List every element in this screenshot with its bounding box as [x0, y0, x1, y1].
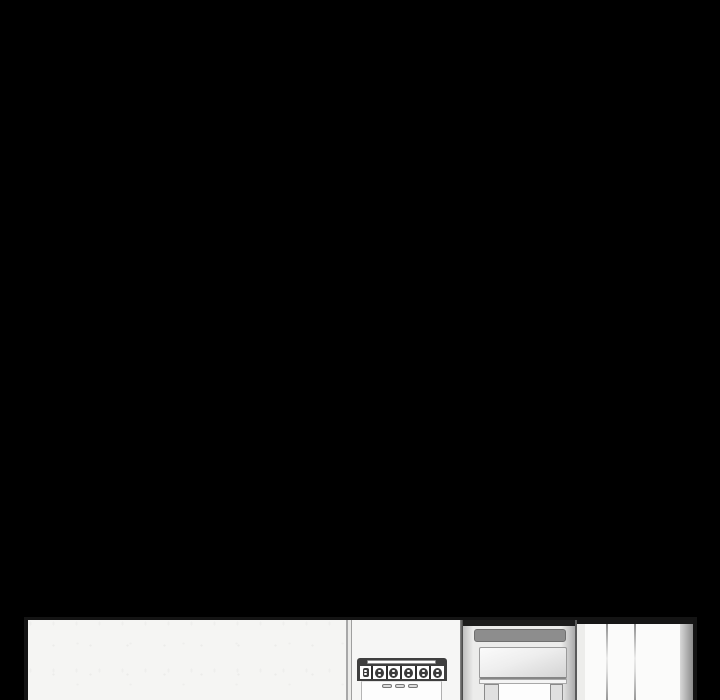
stove-knob-cell	[400, 666, 415, 679]
comic-panel	[24, 617, 697, 700]
oven-drawer-handle	[408, 684, 418, 688]
stove-knob	[433, 668, 442, 678]
oven-drawer-handle	[382, 684, 392, 688]
stove-knob	[375, 668, 384, 678]
stove-knob	[404, 668, 413, 678]
cabinet-panels-right	[577, 620, 693, 700]
stove-knob-row	[360, 666, 444, 679]
stove-knob-cell	[371, 666, 386, 679]
letterbox-background	[0, 0, 720, 700]
oven-drawer-handle	[395, 684, 405, 688]
stove-knob-cell	[429, 666, 444, 679]
stove-knob	[419, 668, 428, 678]
dispenser-cavity-interior	[499, 684, 550, 700]
cabinet-panel-seam	[606, 624, 608, 700]
dispenser-post-left	[484, 684, 499, 700]
stove-backsplash-trim	[367, 660, 436, 664]
stove-control-panel	[357, 658, 447, 681]
stove-aux-switch	[363, 668, 369, 677]
stove-aux-switch-cell	[360, 666, 371, 679]
cabinet-edge-strip	[680, 624, 693, 700]
stove-knob	[389, 668, 398, 678]
kitchen-scene	[28, 620, 693, 700]
refrigerator-top-edge	[463, 620, 577, 626]
cabinet-shade-column	[577, 624, 585, 700]
dispenser-post-right	[550, 684, 563, 700]
oven-front	[361, 681, 442, 700]
oven-handle-row	[382, 684, 418, 688]
water-dispenser	[479, 647, 567, 679]
cabinet-panel-seam	[634, 624, 636, 700]
stove	[357, 658, 447, 700]
kitchen-wall	[28, 620, 346, 700]
refrigerator	[463, 620, 577, 700]
dispenser-cavity	[484, 684, 563, 700]
stove-knob-cell	[386, 666, 401, 679]
refrigerator-recessed-handle	[474, 629, 566, 642]
stove-knob-cell	[415, 666, 430, 679]
